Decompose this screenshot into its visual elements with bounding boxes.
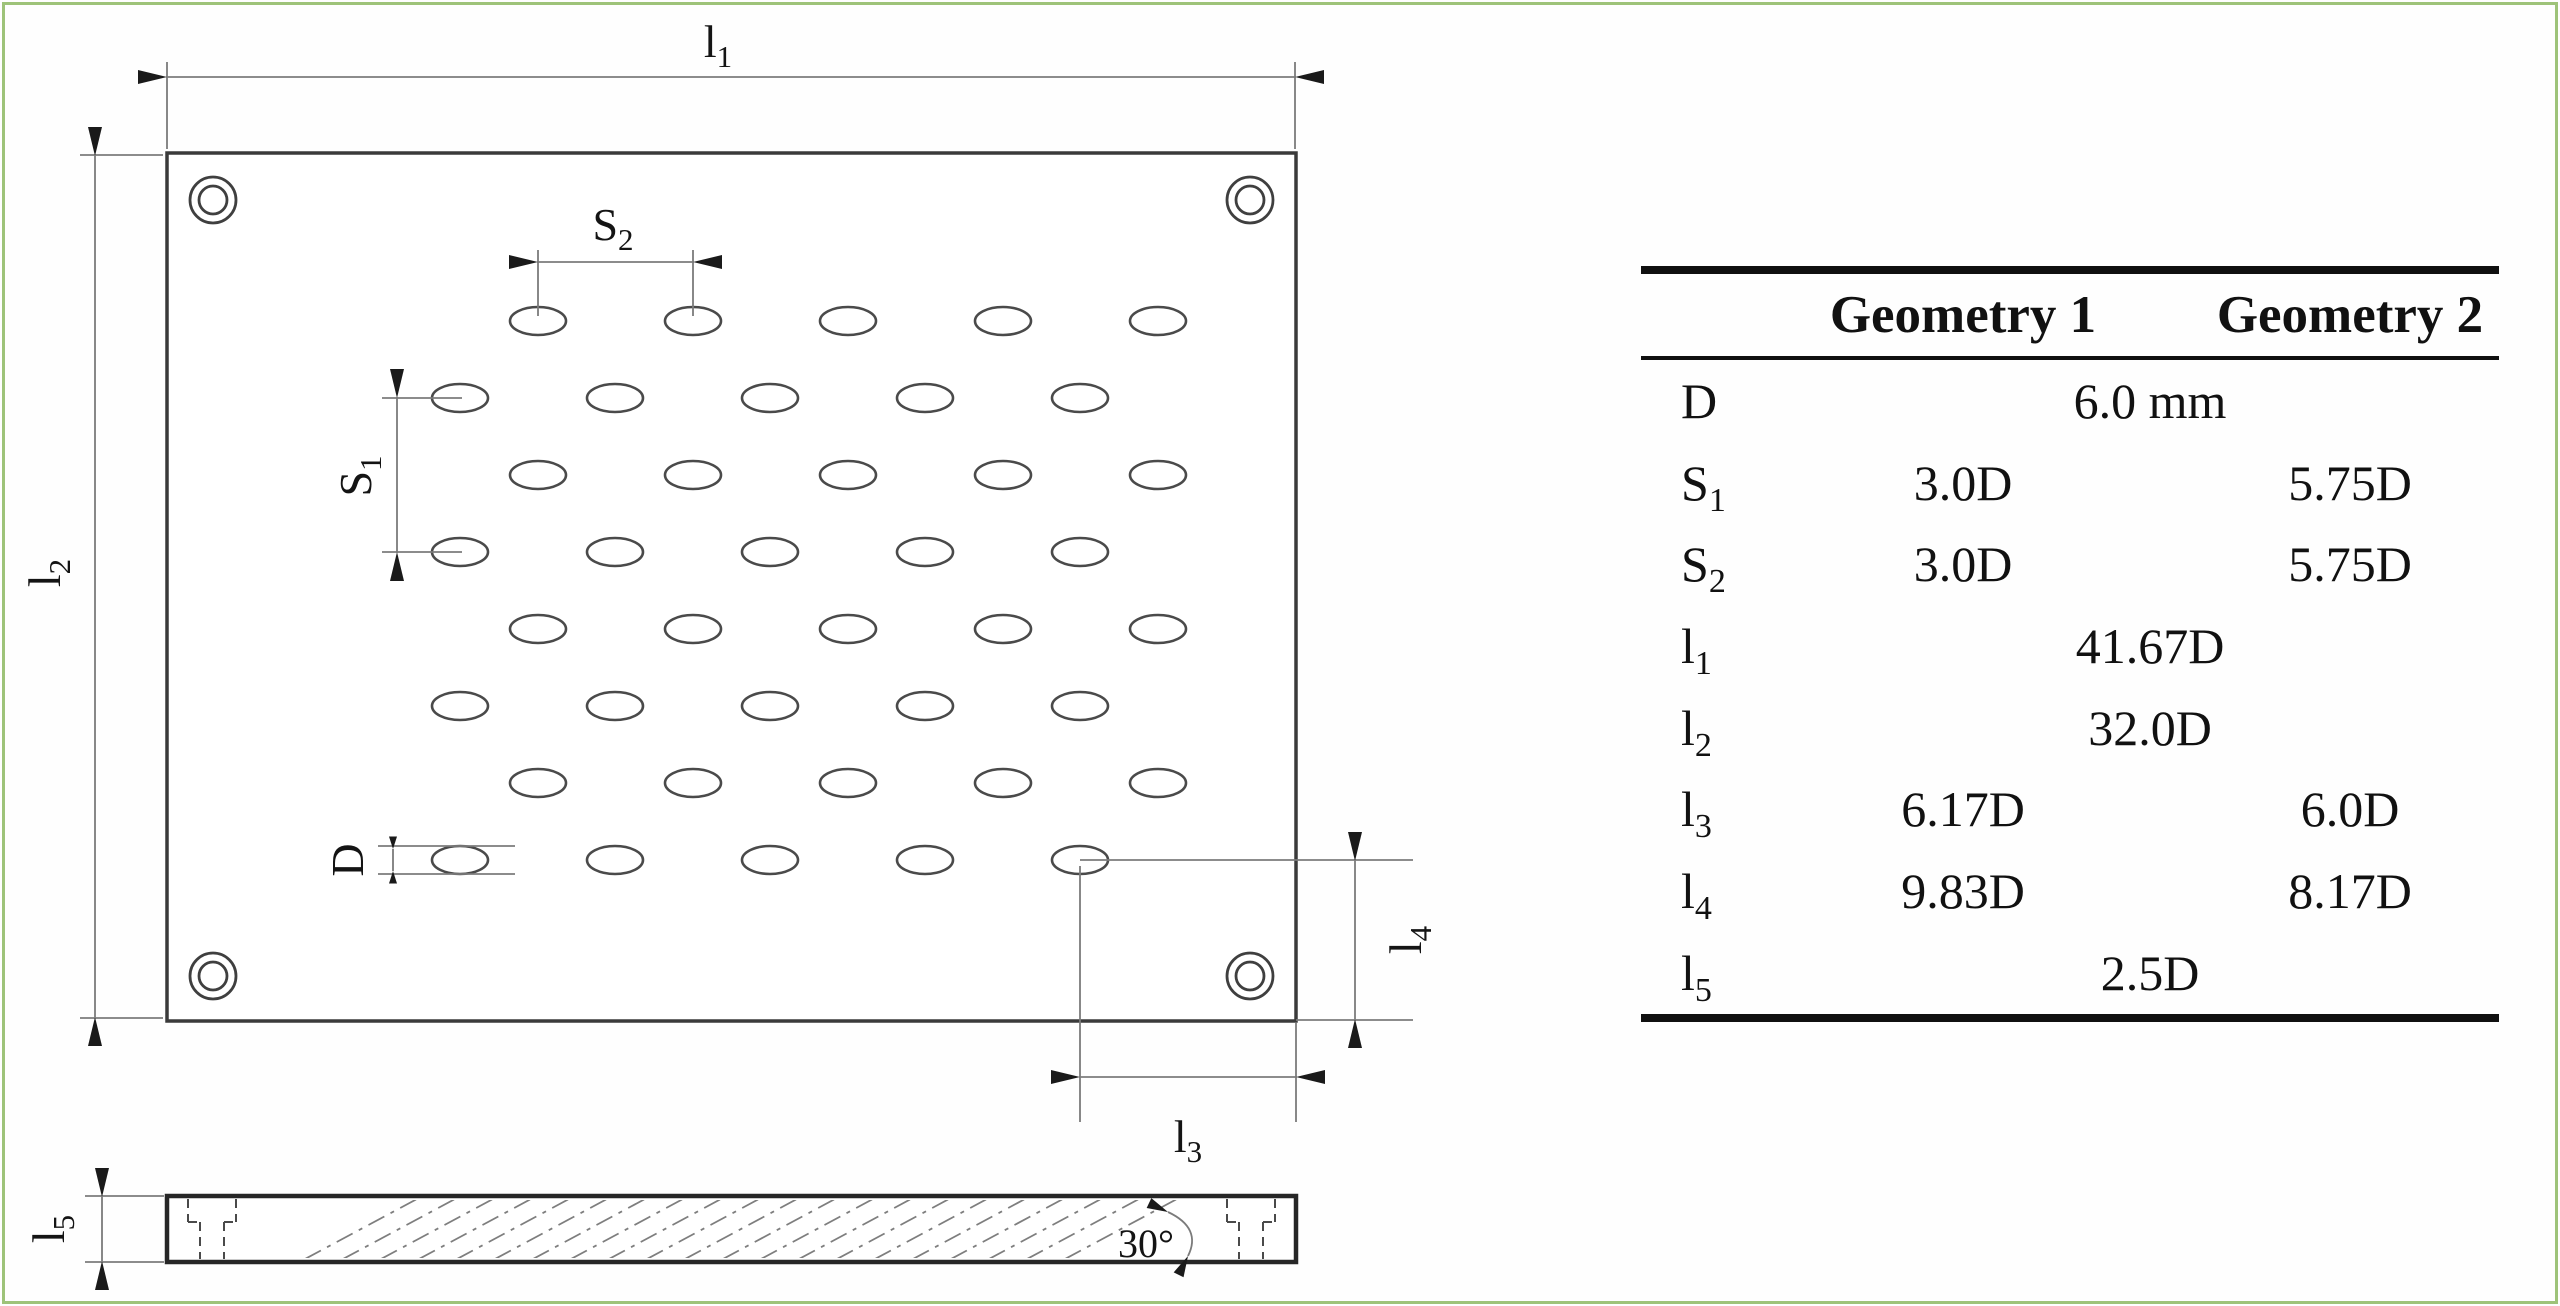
dim-label-l1: l1	[704, 16, 732, 74]
table-row: l5 2.5D	[1641, 932, 2499, 1014]
row-value-shared: 32.0D	[1771, 699, 2499, 757]
hatch-angle-label: 30°	[1118, 1221, 1174, 1266]
header-geometry-1: Geometry 1	[1771, 285, 2155, 345]
row-value-geometry2: 5.75D	[2155, 535, 2499, 593]
dim-label-l4: l4	[1380, 925, 1438, 954]
row-label: l1	[1641, 617, 1771, 675]
row-value-geometry2: 6.0D	[2155, 780, 2499, 838]
dim-label-l2: l2	[19, 559, 77, 587]
row-value-shared: 41.67D	[1771, 617, 2499, 675]
table-row: l3 6.17D 6.0D	[1641, 768, 2499, 850]
row-label: S1	[1641, 454, 1771, 512]
table-header-row: Geometry 1 Geometry 2	[1641, 274, 2499, 360]
row-label: l3	[1641, 780, 1771, 838]
row-label: l4	[1641, 862, 1771, 920]
row-label: D	[1641, 372, 1771, 430]
figure-page: { "figure": { "dims": { "l1": {"base":"l…	[0, 0, 2560, 1306]
row-value-geometry2: 8.17D	[2155, 862, 2499, 920]
section-view: 30°	[167, 1196, 1296, 1266]
table-row: D 6.0 mm	[1641, 360, 2499, 442]
dim-label-l3: l3	[1174, 1111, 1202, 1169]
table-row: l1 41.67D	[1641, 605, 2499, 687]
table-row: S2 3.0D 5.75D	[1641, 523, 2499, 605]
header-geometry-2: Geometry 2	[2155, 285, 2499, 345]
row-value-shared: 2.5D	[1771, 944, 2499, 1002]
row-label: l2	[1641, 699, 1771, 757]
row-value-geometry1: 3.0D	[1771, 535, 2155, 593]
table-row: l4 9.83D 8.17D	[1641, 850, 2499, 932]
dim-label-d: D	[322, 843, 373, 876]
row-value-geometry1: 6.17D	[1771, 780, 2155, 838]
row-value-geometry1: 9.83D	[1771, 862, 2155, 920]
row-value-geometry1: 3.0D	[1771, 454, 2155, 512]
table-row: S1 3.0D 5.75D	[1641, 442, 2499, 524]
row-value-shared: 6.0 mm	[1771, 372, 2499, 430]
table-row: l2 32.0D	[1641, 687, 2499, 769]
plate-outline	[167, 153, 1296, 1021]
front-view	[167, 153, 1296, 1021]
dim-l5: l5	[23, 1196, 164, 1262]
row-value-geometry2: 5.75D	[2155, 454, 2499, 512]
dim-label-l5: l5	[23, 1215, 81, 1243]
dim-l2: l2	[19, 155, 163, 1018]
dim-l1: l1	[167, 16, 1295, 149]
geometry-table: Geometry 1 Geometry 2 D 6.0 mm S1 3.0D 5…	[1641, 266, 2499, 1022]
row-label: S2	[1641, 535, 1771, 593]
row-label: l5	[1641, 944, 1771, 1002]
